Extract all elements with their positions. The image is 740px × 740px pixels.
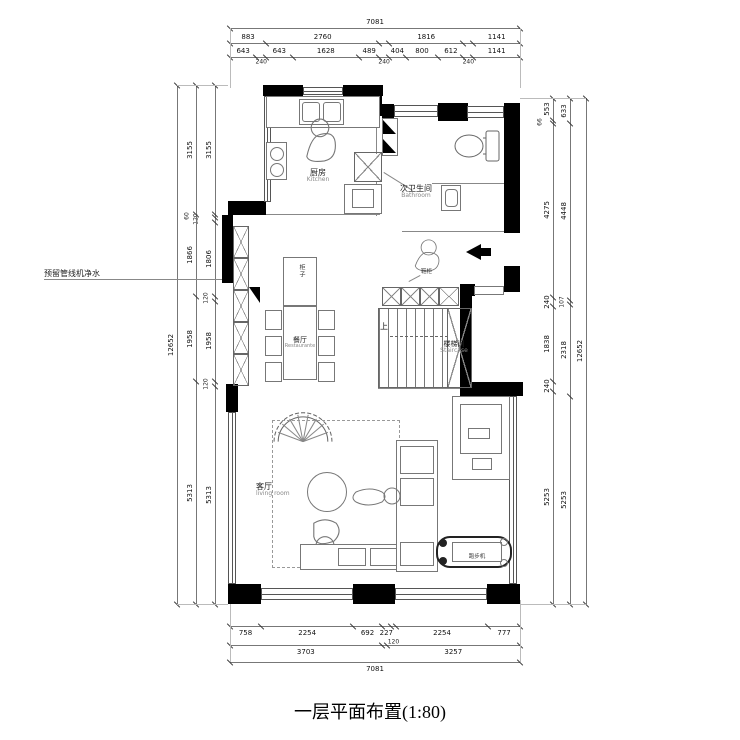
- treadmill-label: 跑步机: [469, 554, 486, 560]
- dim-label: 643: [236, 47, 249, 55]
- dim-label: 1838: [543, 335, 551, 353]
- burner: [270, 147, 284, 161]
- living-label: 客厅 living room: [256, 482, 312, 498]
- dim-line: [230, 28, 520, 29]
- burner: [270, 163, 284, 177]
- entry-arrow-icon: [466, 244, 481, 260]
- dim-label: 1141: [488, 33, 506, 41]
- window: [467, 106, 504, 118]
- wall: [343, 85, 383, 96]
- dim-label: 240: [378, 59, 389, 66]
- dim-label: 227: [380, 629, 393, 637]
- extension-line: [230, 28, 231, 88]
- wall: [504, 103, 520, 233]
- dim-label: 3257: [444, 648, 462, 656]
- window: [228, 412, 236, 584]
- stair-up-label: 上: [380, 321, 388, 332]
- person-figure: [298, 112, 342, 168]
- dim-label: 60: [184, 212, 191, 220]
- sideboard-label: 柜子: [297, 264, 306, 278]
- pipeline-note: 预留管线机净水: [44, 268, 100, 279]
- shoe-cabinet: [401, 287, 420, 306]
- partition: [378, 388, 460, 389]
- tall-cabinet: [233, 322, 249, 354]
- door-marker: [249, 287, 260, 303]
- dim-label: 240: [463, 59, 474, 66]
- wall: [228, 584, 261, 604]
- extension-line: [520, 600, 521, 662]
- dim-label: 7081: [366, 18, 384, 26]
- dim-line: [230, 662, 520, 663]
- fridge-inner: [352, 189, 374, 208]
- dim-label: 5253: [560, 491, 568, 509]
- wall: [353, 584, 395, 604]
- dim-line: [570, 98, 571, 604]
- dim-label: 66: [537, 118, 544, 126]
- dining-chair: [318, 310, 335, 330]
- dim-line: [177, 85, 178, 604]
- dim-label: 1806: [205, 250, 213, 268]
- treadmill-wheel: [500, 559, 508, 567]
- dim-label: 5253: [543, 488, 551, 506]
- shoe-cabinet: [382, 287, 401, 306]
- wall: [228, 201, 266, 215]
- kitchen-cabinet: [354, 152, 382, 182]
- extension-line: [177, 85, 228, 86]
- leader-line: [44, 279, 222, 280]
- dim-label: 240: [543, 379, 551, 392]
- dim-label: 1141: [488, 47, 506, 55]
- dim-label: 4448: [560, 202, 568, 220]
- bath-counter: [432, 183, 504, 184]
- sofa-cushion: [400, 478, 434, 506]
- dim-label: 1816: [417, 33, 435, 41]
- stair-centerline: [390, 336, 448, 337]
- dim-label: 553: [543, 103, 551, 116]
- dim-label: 5313: [205, 486, 213, 504]
- kitchen-label: 厨房 Kitchen: [298, 168, 338, 184]
- shoe-cabinet-label: 鞋柜: [421, 267, 432, 275]
- dining-chair: [265, 362, 282, 382]
- window: [261, 588, 353, 600]
- dim-label: 1866: [186, 246, 194, 264]
- dining-name-en: Restaurante: [278, 344, 322, 350]
- dim-line: [196, 85, 197, 604]
- cushion: [370, 548, 398, 566]
- dining-chair: [265, 310, 282, 330]
- dim-line: [215, 85, 216, 604]
- dim-label: 489: [363, 47, 376, 55]
- dim-label: 777: [497, 629, 510, 637]
- dim-label: 2254: [298, 629, 316, 637]
- dim-label: 1958: [205, 332, 213, 350]
- tall-cabinet: [233, 290, 249, 322]
- living-name-en: living room: [256, 491, 312, 498]
- shelf-hatch: [383, 139, 396, 153]
- shoe-cabinet: [439, 287, 459, 306]
- dim-line: [230, 645, 520, 646]
- dim-label: 1628: [317, 47, 335, 55]
- wall: [487, 584, 520, 604]
- extension-line: [520, 604, 586, 605]
- sideboard: 柜子: [283, 257, 317, 306]
- shoe-cabinet: [420, 287, 439, 306]
- dim-label: 692: [361, 629, 374, 637]
- wall: [438, 103, 468, 121]
- dining-chair: [318, 362, 335, 382]
- bathroom-label: 次卫生间 Bathroom: [394, 184, 438, 200]
- dim-label: 758: [239, 629, 252, 637]
- dim-label: 120: [203, 378, 210, 389]
- dim-label: 633: [560, 104, 568, 117]
- dim-label: 4275: [543, 201, 551, 219]
- extension-line: [520, 28, 521, 88]
- sofa-cushion: [400, 542, 434, 566]
- dim-line: [230, 57, 520, 58]
- dim-label: 2318: [560, 341, 568, 359]
- wall: [226, 384, 238, 412]
- toilet-icon: [452, 126, 502, 166]
- dim-label: 3703: [297, 648, 315, 656]
- window: [394, 105, 438, 117]
- wall: [460, 284, 475, 296]
- leader-line: [409, 275, 421, 282]
- dim-label: 612: [444, 47, 457, 55]
- window: [303, 87, 343, 95]
- sofa-cushion: [400, 446, 434, 474]
- tall-cabinet: [233, 226, 249, 258]
- entry-arrow-tail: [481, 248, 491, 256]
- dim-label: 12652: [576, 340, 584, 362]
- dim-label: 2760: [314, 33, 332, 41]
- partition: [266, 214, 380, 215]
- tall-cabinet: [233, 258, 249, 290]
- piano-stool: [472, 458, 492, 470]
- extension-line: [177, 604, 228, 605]
- dining-label: 餐厅 Restaurante: [278, 336, 322, 350]
- bathroom-name-en: Bathroom: [394, 193, 438, 200]
- dim-line: [553, 98, 554, 604]
- dim-label: 240: [543, 295, 551, 308]
- extension-line: [520, 98, 586, 99]
- dim-label: 2254: [433, 629, 451, 637]
- treadmill-roller: [439, 557, 447, 565]
- person-figure: [352, 478, 402, 514]
- dim-label: 3155: [186, 141, 194, 159]
- cushion: [338, 548, 366, 566]
- half-wall: [474, 286, 504, 295]
- drawing-title: 一层平面布置(1:80): [0, 698, 740, 724]
- dim-line: [230, 43, 520, 44]
- dim-label: 800: [415, 47, 428, 55]
- dim-label: 120: [203, 293, 210, 304]
- treadmill-belt: 跑步机: [452, 542, 502, 562]
- treadmill-roller: [439, 539, 447, 547]
- dim-line: [586, 98, 587, 604]
- dim-label: 12652: [167, 333, 175, 355]
- dim-label: 3155: [205, 141, 213, 159]
- dim-label: 643: [273, 47, 286, 55]
- dim-line: [230, 626, 520, 627]
- treadmill-wheel: [500, 538, 508, 546]
- staircase-name-en: Staircase: [434, 348, 474, 355]
- staircase-label: 楼梯间 Staircase: [434, 340, 474, 355]
- piano-keys: [468, 428, 490, 439]
- partition: [402, 231, 504, 232]
- wall: [222, 215, 233, 283]
- dim-label: 107: [559, 296, 566, 307]
- tall-cabinet: [233, 354, 249, 386]
- wall: [263, 85, 303, 96]
- dim-label: 5313: [186, 484, 194, 502]
- window: [395, 588, 487, 600]
- dim-label: 240: [256, 59, 267, 66]
- wall: [504, 266, 520, 292]
- dim-label: 404: [391, 47, 404, 55]
- shelf-hatch: [383, 120, 396, 134]
- floor-plan-sheet: 7081883276018161141643240643162848924040…: [0, 0, 740, 740]
- extension-line: [230, 600, 231, 662]
- dim-label: 883: [241, 33, 254, 41]
- kitchen-name-en: Kitchen: [298, 177, 338, 184]
- washbasin-bowl: [445, 189, 458, 207]
- round-table: [307, 472, 347, 512]
- dim-label: 1958: [186, 330, 194, 348]
- dim-label: 7081: [366, 665, 384, 673]
